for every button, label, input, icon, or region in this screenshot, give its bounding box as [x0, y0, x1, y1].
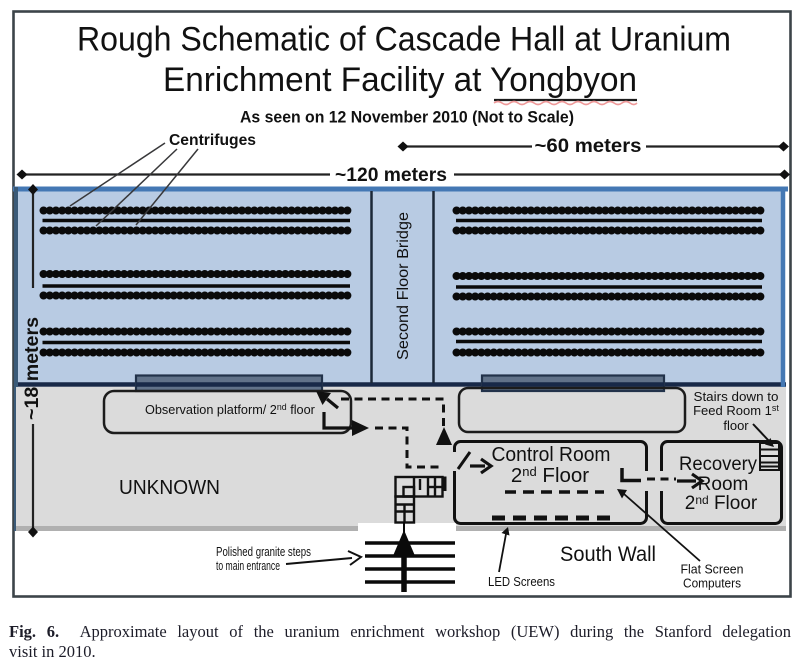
svg-text:Room: Room	[698, 474, 749, 495]
svg-text:Control Room: Control Room	[492, 443, 611, 466]
svg-text:Observation platform/ 2nd floo: Observation platform/ 2nd floor	[145, 402, 316, 417]
svg-text:floor: floor	[723, 418, 749, 433]
svg-text:LED Screens: LED Screens	[488, 575, 555, 589]
svg-text:Centrifuges: Centrifuges	[169, 132, 256, 149]
svg-text:~120 meters: ~120 meters	[335, 165, 447, 186]
svg-text:to main entrance: to main entrance	[216, 558, 280, 573]
svg-text:As seen on 12 November 2010 (N: As seen on 12 November 2010 (Not to Scal…	[240, 108, 574, 127]
svg-text:UNKNOWN: UNKNOWN	[119, 476, 220, 499]
svg-text:Flat Screen: Flat Screen	[681, 563, 744, 577]
svg-text:Rough Schematic of Cascade Hal: Rough Schematic of Cascade Hall at Urani…	[77, 21, 731, 59]
svg-text:Recovery: Recovery	[679, 453, 757, 475]
svg-text:~60 meters: ~60 meters	[535, 136, 642, 157]
svg-text:Second Floor Bridge: Second Floor Bridge	[395, 212, 412, 360]
svg-text:Enrichment Facility at Yongbyo: Enrichment Facility at Yongbyon	[163, 61, 637, 99]
svg-text:Computers: Computers	[683, 577, 741, 591]
svg-text:Polished granite steps: Polished granite steps	[216, 544, 311, 559]
svg-text:~18 meters: ~18 meters	[22, 317, 43, 420]
svg-text:Stairs down to: Stairs down to	[694, 389, 779, 404]
svg-text:South Wall: South Wall	[560, 543, 656, 566]
svg-text:Feed Room 1st: Feed Room 1st	[693, 403, 779, 418]
